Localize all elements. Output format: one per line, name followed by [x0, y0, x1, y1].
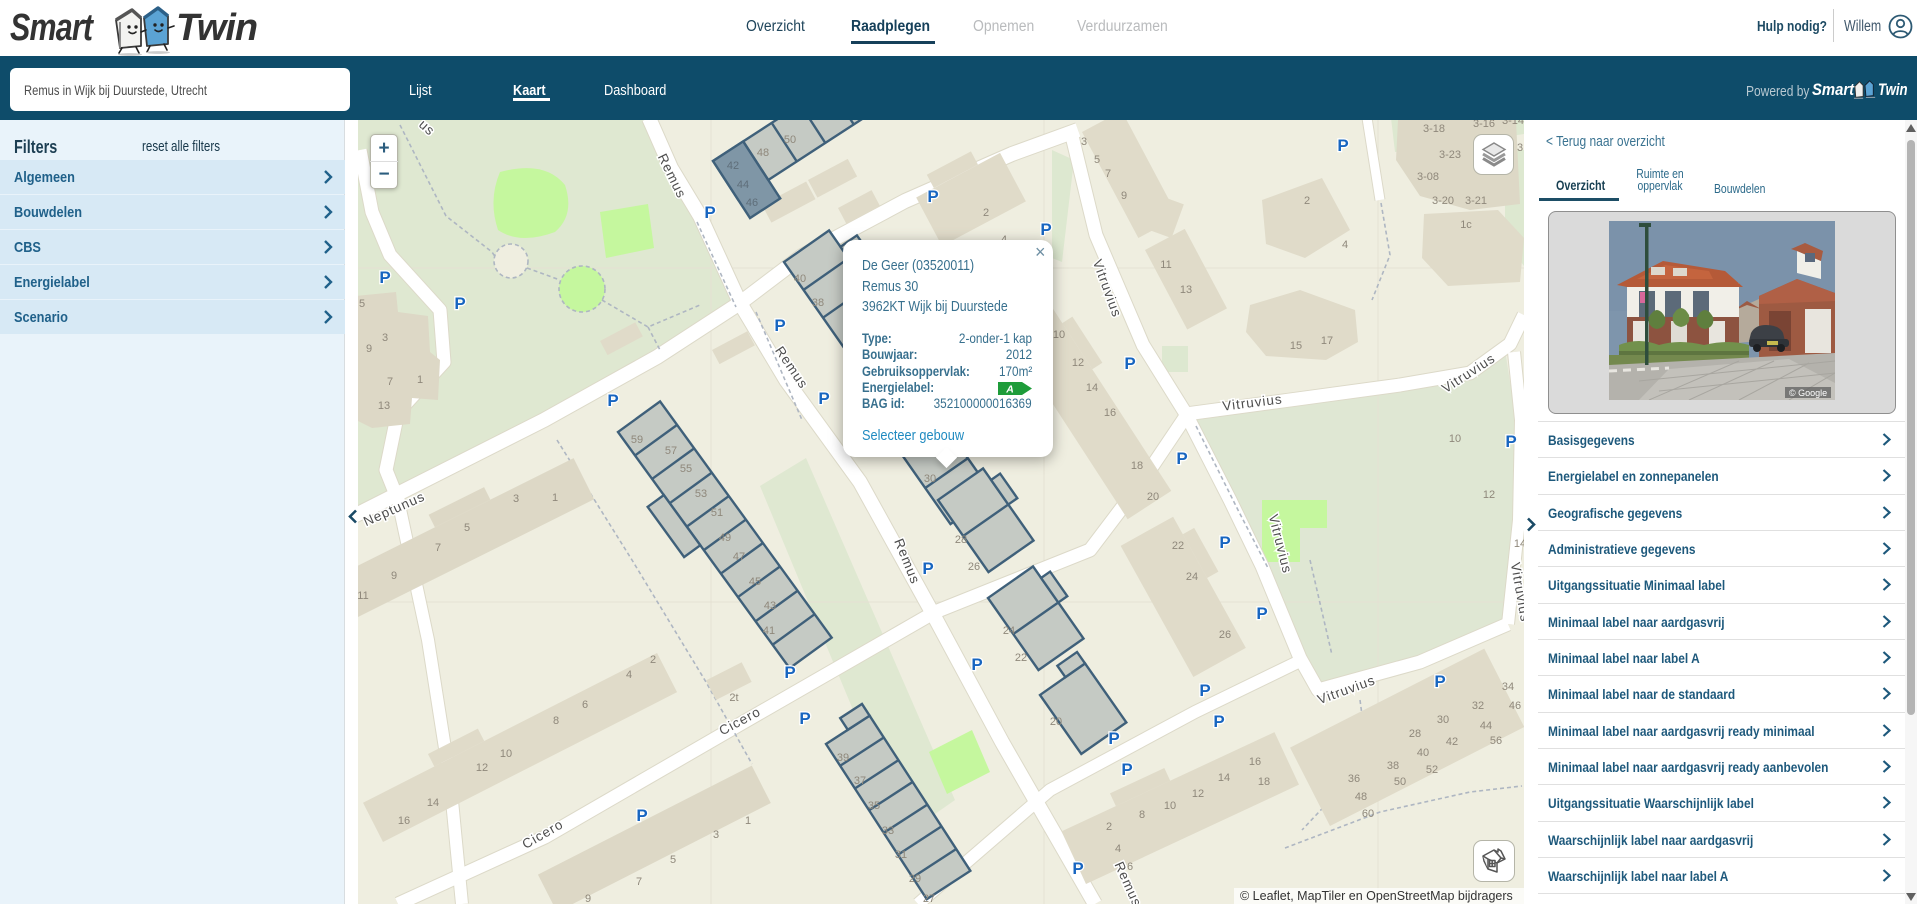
svg-text:40: 40: [794, 273, 806, 285]
svg-text:2: 2: [650, 654, 656, 666]
svg-text:1: 1: [417, 374, 423, 386]
svg-text:10: 10: [1053, 329, 1065, 341]
svg-text:36: 36: [1348, 773, 1360, 785]
svg-text:1: 1: [552, 492, 558, 504]
svg-text:P: P: [922, 559, 933, 578]
svg-text:5: 5: [464, 522, 470, 534]
svg-text:P: P: [1040, 220, 1051, 239]
svg-text:13: 13: [1180, 284, 1192, 296]
svg-text:P: P: [799, 709, 810, 728]
svg-text:50: 50: [1394, 776, 1406, 788]
svg-text:38: 38: [812, 297, 824, 309]
svg-text:12: 12: [476, 762, 488, 774]
svg-text:30: 30: [1437, 714, 1449, 726]
svg-text:3-14: 3-14: [1502, 120, 1524, 127]
svg-text:50: 50: [784, 134, 796, 146]
svg-text:52: 52: [1426, 764, 1438, 776]
svg-text:P: P: [379, 268, 390, 287]
svg-text:P: P: [1219, 533, 1230, 552]
svg-text:5: 5: [359, 298, 365, 310]
svg-text:29: 29: [909, 873, 921, 885]
svg-text:12: 12: [1072, 357, 1084, 369]
svg-text:33: 33: [882, 825, 894, 837]
svg-text:46: 46: [1509, 700, 1521, 712]
svg-text:38: 38: [1387, 760, 1399, 772]
svg-text:24: 24: [1003, 625, 1015, 637]
svg-text:49: 49: [719, 532, 731, 544]
svg-text:24: 24: [1186, 571, 1198, 583]
svg-text:4: 4: [1342, 239, 1348, 251]
svg-text:8: 8: [1139, 809, 1145, 821]
svg-text:26: 26: [1219, 629, 1231, 641]
svg-text:P: P: [1434, 672, 1445, 691]
svg-text:15: 15: [1290, 340, 1302, 352]
svg-text:16: 16: [398, 815, 410, 827]
svg-text:37: 37: [854, 775, 866, 787]
svg-text:14: 14: [427, 797, 439, 809]
svg-text:3: 3: [1517, 142, 1523, 154]
svg-text:3-08: 3-08: [1417, 171, 1439, 183]
svg-text:55: 55: [680, 463, 692, 475]
svg-text:56: 56: [1490, 735, 1502, 747]
svg-text:3-23: 3-23: [1439, 149, 1461, 161]
svg-text:P: P: [1337, 136, 1348, 155]
svg-text:16: 16: [1104, 407, 1116, 419]
svg-text:53: 53: [695, 488, 707, 500]
svg-text:7: 7: [387, 376, 393, 388]
svg-text:11: 11: [1160, 259, 1171, 271]
svg-text:43: 43: [764, 600, 776, 612]
svg-text:4: 4: [1115, 843, 1121, 855]
svg-text:2: 2: [1304, 195, 1310, 207]
svg-text:48: 48: [757, 147, 769, 159]
svg-text:P: P: [454, 294, 465, 313]
svg-text:18: 18: [1131, 460, 1143, 472]
svg-text:© Google: © Google: [1789, 388, 1827, 398]
svg-text:P: P: [1176, 449, 1187, 468]
svg-text:10: 10: [1449, 433, 1461, 445]
svg-text:P: P: [1108, 729, 1119, 748]
svg-text:P: P: [818, 389, 829, 408]
svg-text:P: P: [1256, 604, 1267, 623]
svg-text:51: 51: [711, 507, 723, 519]
svg-text:14: 14: [1514, 538, 1524, 550]
svg-text:7: 7: [1105, 168, 1111, 180]
svg-text:3-21: 3-21: [1465, 195, 1487, 207]
svg-text:44: 44: [737, 179, 749, 191]
svg-text:48: 48: [1355, 791, 1367, 803]
svg-text:27: 27: [923, 893, 935, 904]
svg-text:P: P: [704, 203, 715, 222]
svg-text:6: 6: [582, 699, 588, 711]
svg-text:11: 11: [358, 590, 369, 602]
svg-text:P: P: [636, 806, 647, 825]
svg-text:10: 10: [1164, 800, 1176, 812]
svg-text:44: 44: [1480, 720, 1492, 732]
svg-text:2: 2: [1106, 821, 1112, 833]
svg-text:14: 14: [1086, 382, 1098, 394]
svg-text:31: 31: [895, 849, 907, 861]
svg-text:20: 20: [1050, 716, 1062, 728]
svg-text:14: 14: [1218, 772, 1230, 784]
svg-text:9: 9: [391, 570, 397, 582]
svg-text:3-18: 3-18: [1423, 123, 1445, 135]
svg-text:22: 22: [1172, 540, 1184, 552]
svg-text:3: 3: [382, 332, 388, 344]
svg-text:9: 9: [1121, 190, 1127, 202]
svg-text:9: 9: [366, 343, 372, 355]
svg-text:© Leaflet, MapTiler en OpenStr: © Leaflet, MapTiler en OpenStreetMap bij…: [1240, 889, 1513, 903]
svg-text:18: 18: [1258, 776, 1270, 788]
svg-text:20: 20: [1147, 491, 1159, 503]
svg-text:A: A: [1005, 383, 1014, 395]
svg-text:P: P: [1072, 859, 1083, 878]
svg-text:P: P: [774, 316, 785, 335]
svg-text:2: 2: [983, 207, 989, 219]
svg-text:17: 17: [1321, 335, 1333, 347]
svg-text:30: 30: [924, 473, 936, 485]
svg-text:45: 45: [749, 576, 761, 588]
svg-text:P: P: [1121, 760, 1132, 779]
svg-text:60: 60: [1362, 808, 1374, 820]
svg-text:5: 5: [670, 854, 676, 866]
svg-text:32: 32: [1472, 700, 1484, 712]
svg-text:P: P: [1124, 354, 1135, 373]
svg-text:12: 12: [1483, 489, 1495, 501]
svg-text:1c: 1c: [1460, 219, 1472, 231]
svg-text:3: 3: [1081, 136, 1087, 148]
svg-text:39: 39: [837, 752, 849, 764]
svg-text:46: 46: [746, 197, 758, 209]
svg-text:22: 22: [1015, 652, 1027, 664]
svg-text:3-16: 3-16: [1473, 120, 1495, 130]
svg-text:P: P: [784, 663, 795, 682]
svg-text:34: 34: [1502, 681, 1514, 693]
svg-text:1: 1: [745, 815, 751, 827]
svg-text:42: 42: [727, 160, 739, 172]
svg-text:P: P: [1505, 432, 1516, 451]
svg-text:P: P: [927, 187, 938, 206]
svg-text:12: 12: [1192, 788, 1204, 800]
svg-text:47: 47: [733, 551, 745, 563]
svg-text:3: 3: [713, 829, 719, 841]
svg-text:57: 57: [665, 445, 677, 457]
svg-text:10: 10: [500, 748, 512, 760]
svg-text:9: 9: [585, 893, 591, 904]
svg-text:5: 5: [1094, 154, 1100, 166]
svg-text:26: 26: [968, 561, 980, 573]
svg-text:13: 13: [378, 400, 390, 412]
svg-text:3: 3: [513, 493, 519, 505]
svg-text:2t: 2t: [729, 692, 738, 704]
svg-text:P: P: [1213, 712, 1224, 731]
svg-text:16: 16: [1249, 756, 1261, 768]
svg-text:4: 4: [626, 669, 632, 681]
svg-text:59: 59: [631, 434, 643, 446]
svg-text:28: 28: [1409, 728, 1421, 740]
svg-text:42: 42: [1446, 736, 1458, 748]
svg-text:35: 35: [868, 800, 880, 812]
svg-text:8: 8: [553, 715, 559, 727]
svg-text:7: 7: [435, 542, 441, 554]
svg-text:P: P: [1199, 681, 1210, 700]
svg-text:41: 41: [763, 625, 775, 637]
svg-text:7: 7: [636, 876, 642, 888]
svg-text:P: P: [971, 655, 982, 674]
svg-text:3-20: 3-20: [1432, 195, 1454, 207]
svg-text:P: P: [607, 391, 618, 410]
svg-text:40: 40: [1417, 747, 1429, 759]
svg-text:28: 28: [955, 534, 967, 546]
